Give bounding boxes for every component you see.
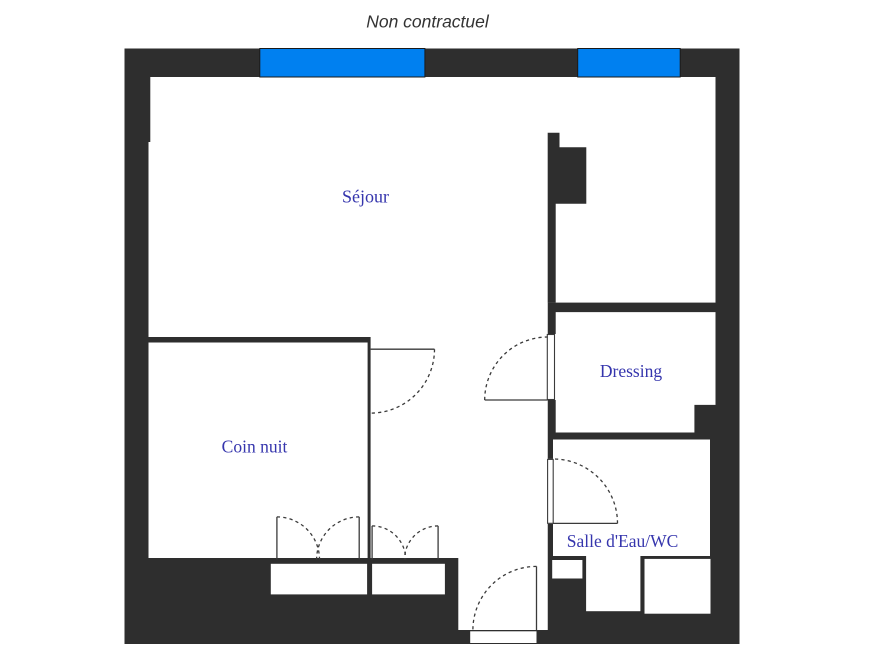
svg-text:Salle d'Eau/WC: Salle d'Eau/WC [567, 531, 679, 551]
svg-text:Séjour: Séjour [342, 186, 389, 206]
svg-text:Non contractuel: Non contractuel [366, 11, 490, 31]
svg-text:Coin nuit: Coin nuit [222, 437, 288, 457]
svg-text:Dressing: Dressing [600, 361, 662, 381]
